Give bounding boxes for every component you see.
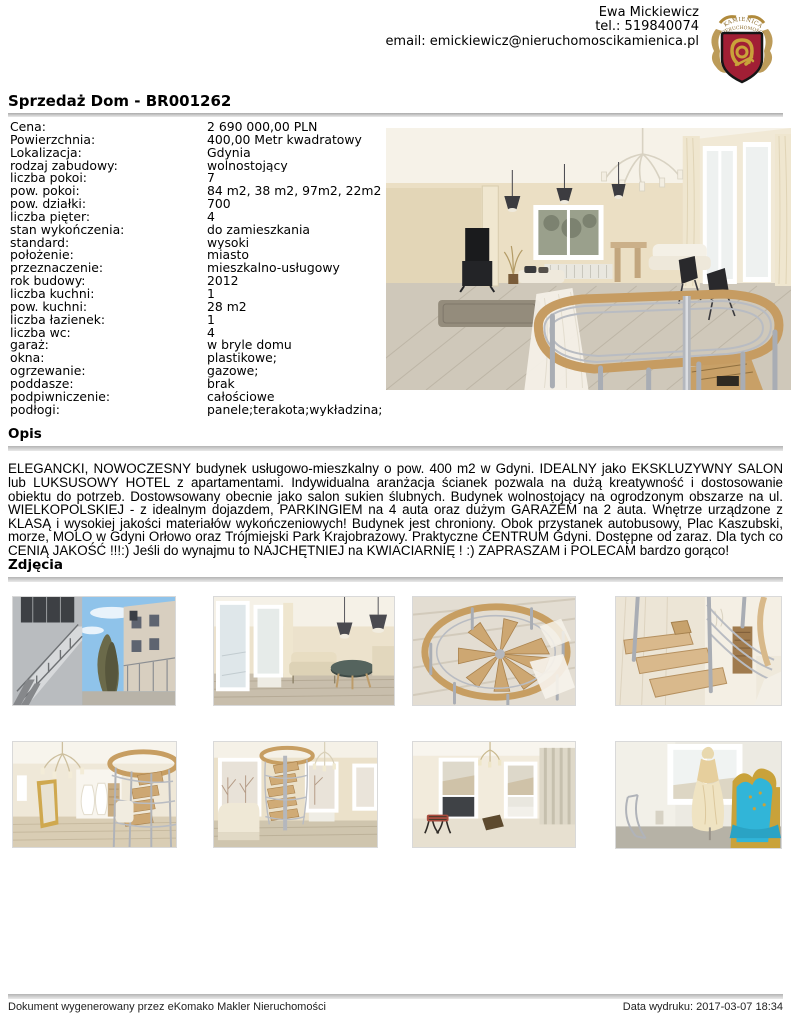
page-title: Sprzedaż Dom - BR001262 [8,92,783,110]
footer-print-date: Data wydruku: 2017-03-07 18:34 [623,1001,783,1013]
main-photo [386,128,791,390]
zdjecia-divider [8,577,783,582]
footer-divider [8,994,783,999]
table-row: podłogi:panele;terakota;wykładzina; [10,404,782,417]
header-contact: Ewa Mickiewicz tel.: 519840074 email: em… [385,6,699,49]
agency-crest-icon: KAMIENICA NIERUCHOMOŚCI [706,7,778,86]
footer-generator-note: Dokument wygenerowany przez eKomako Makl… [8,1001,326,1013]
agent-name: Ewa Mickiewicz [385,6,699,20]
photo-thumbnail-2 [213,596,395,706]
title-divider [8,113,783,117]
table-row: podpiwniczenie:całościowe [10,391,782,404]
photo-thumbnail-3 [412,596,576,706]
agent-email: email: emickiewicz@nieruchomoscikamienic… [385,35,699,49]
section-title-opis: Opis [8,426,783,442]
document-page: Ewa Mickiewicz tel.: 519840074 email: em… [0,0,791,1024]
opis-divider [8,446,783,451]
photo-thumbnail-8 [615,741,782,849]
section-title-zdjecia: Zdjęcia [8,557,783,573]
photo-thumbnail-7 [412,741,576,848]
photo-thumbnail-5 [12,741,177,848]
photo-thumbnail-1 [12,596,176,706]
photo-thumbnail-4 [615,596,782,706]
agent-phone: tel.: 519840074 [385,20,699,34]
property-description: ELEGANCKI, NOWOCZESNY budynek usługowo-m… [8,462,783,557]
photo-thumbnail-6 [213,741,378,848]
